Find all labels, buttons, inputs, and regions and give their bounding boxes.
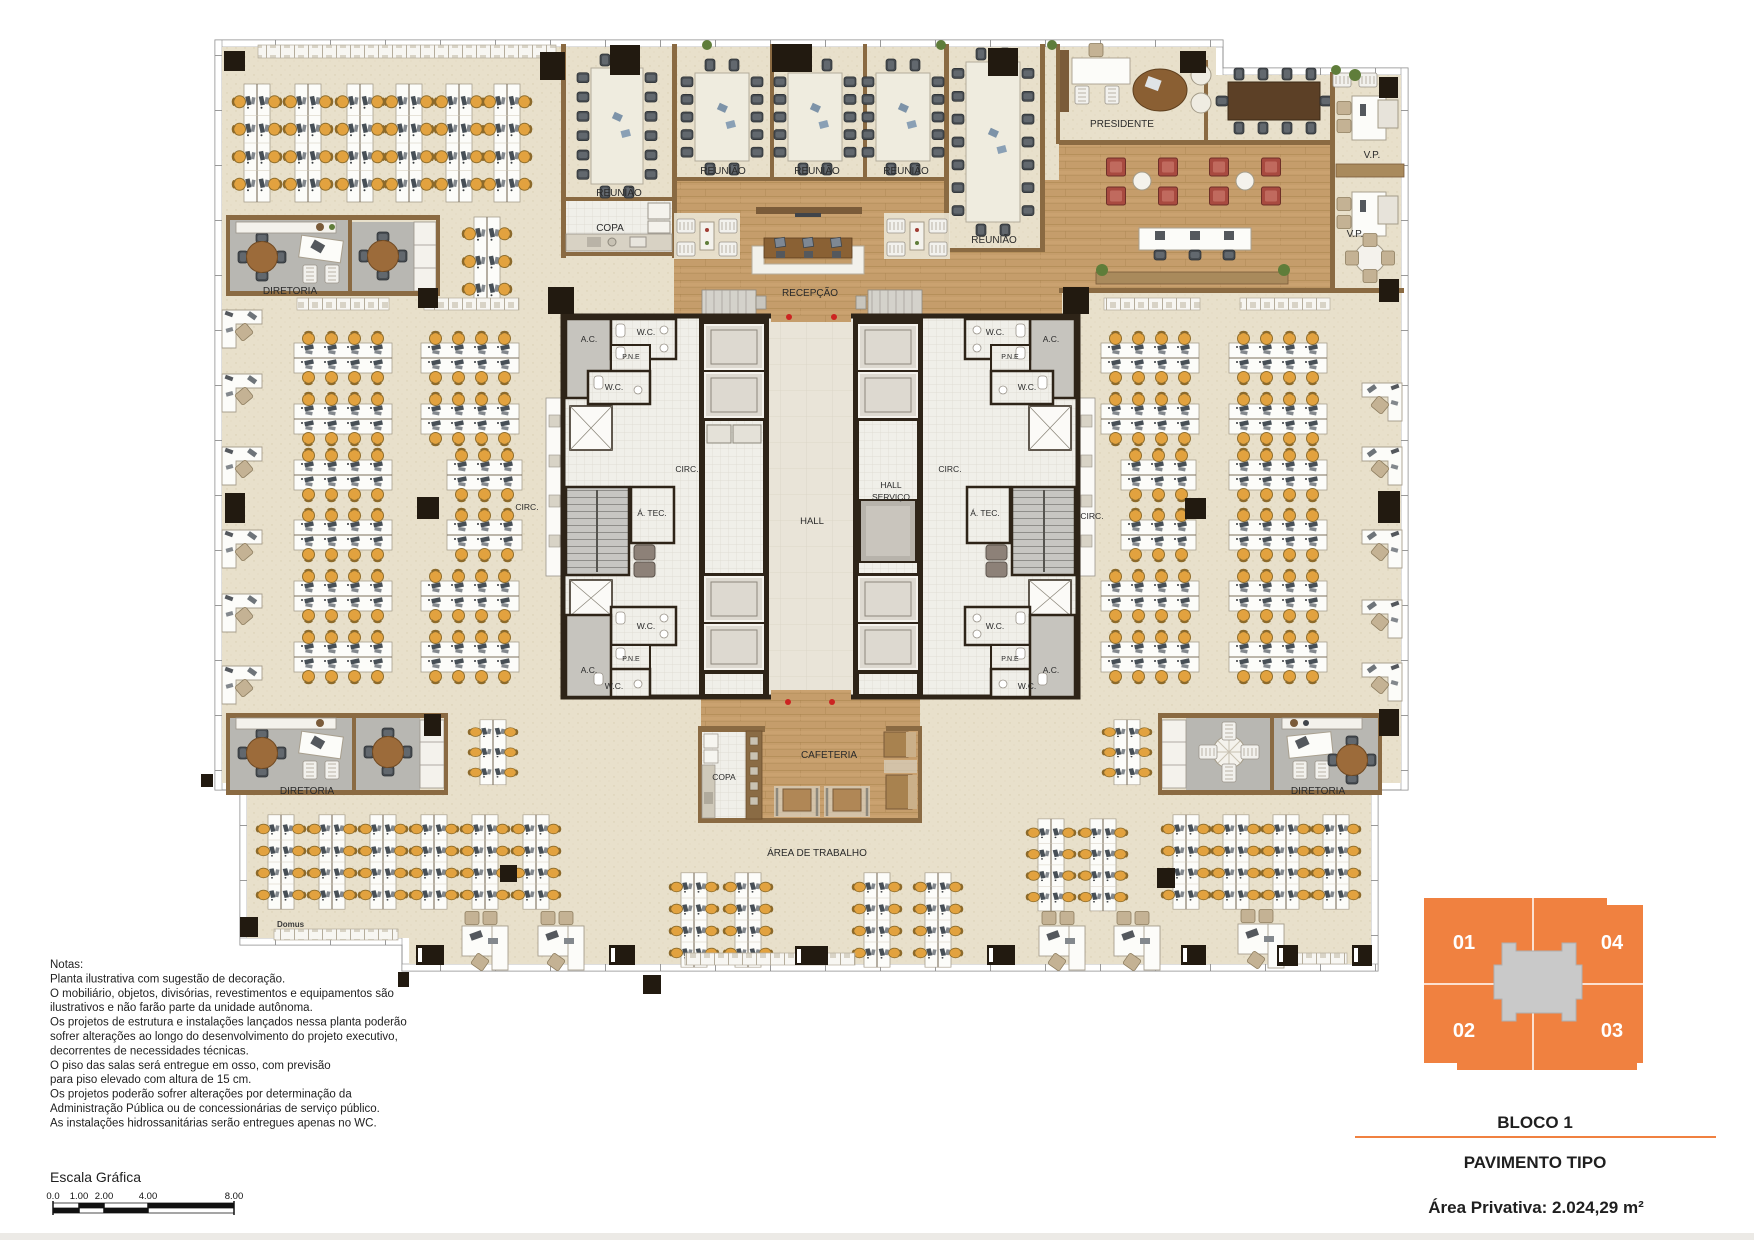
svg-text:Á. TEC.: Á. TEC. <box>637 508 667 518</box>
svg-text:HALL: HALL <box>880 480 902 490</box>
svg-text:HALL: HALL <box>800 516 824 527</box>
svg-text:COPA: COPA <box>712 772 736 782</box>
svg-text:0.0: 0.0 <box>46 1191 59 1202</box>
svg-text:W.C.: W.C. <box>637 327 655 337</box>
svg-text:SERVIÇO: SERVIÇO <box>872 492 910 502</box>
svg-text:P.N.E: P.N.E <box>1001 656 1019 663</box>
svg-text:A.C.: A.C. <box>1043 334 1060 344</box>
svg-text:DIRETORIA: DIRETORIA <box>280 786 335 797</box>
svg-text:ÁREA DE TRABALHO: ÁREA DE TRABALHO <box>767 846 867 859</box>
svg-text:Escala Gráfica: Escala Gráfica <box>50 1169 141 1185</box>
svg-text:V.P.: V.P. <box>1364 150 1381 161</box>
svg-text:BLOCO 1: BLOCO 1 <box>1497 1113 1573 1132</box>
svg-text:1.00: 1.00 <box>70 1191 89 1202</box>
svg-text:CIRC.: CIRC. <box>938 464 961 474</box>
svg-text:A.C.: A.C. <box>1043 665 1060 675</box>
svg-text:W.C.: W.C. <box>605 681 623 691</box>
svg-text:Planta ilustrativa com sugestã: Planta ilustrativa com sugestão de decor… <box>50 973 285 985</box>
svg-text:DIRETORIA: DIRETORIA <box>263 286 318 297</box>
svg-text:Notas:: Notas: <box>50 959 83 971</box>
svg-text:PRESIDENTE: PRESIDENTE <box>1090 119 1154 130</box>
svg-text:RECEPÇÃO: RECEPÇÃO <box>782 286 838 299</box>
svg-text:REUNIÃO: REUNIÃO <box>596 186 642 199</box>
svg-text:PAVIMENTO TIPO: PAVIMENTO TIPO <box>1464 1153 1607 1172</box>
svg-text:REUNIÃO: REUNIÃO <box>700 164 746 177</box>
svg-text:W.C.: W.C. <box>986 327 1004 337</box>
svg-text:Área Privativa: 2.024,29 m²: Área Privativa: 2.024,29 m² <box>1428 1198 1644 1217</box>
svg-text:O mobiliário, objetos, divisór: O mobiliário, objetos, divisórias, reves… <box>50 988 394 1000</box>
svg-text:W.C.: W.C. <box>605 382 623 392</box>
svg-text:CIRC.: CIRC. <box>1080 511 1103 521</box>
svg-text:CIRC.: CIRC. <box>675 464 698 474</box>
svg-text:Administração Pública ou de co: Administração Pública ou de concessionár… <box>50 1103 380 1115</box>
svg-text:2.00: 2.00 <box>95 1191 114 1202</box>
svg-text:ilustrativos e não farão parte: ilustrativos e não farão parte da unidad… <box>50 1002 313 1014</box>
svg-text:P.N.E: P.N.E <box>622 354 640 361</box>
svg-text:CIRC.: CIRC. <box>515 502 538 512</box>
svg-text:Á. TEC.: Á. TEC. <box>970 508 1000 518</box>
svg-text:COPA: COPA <box>596 223 624 234</box>
svg-text:04: 04 <box>1601 932 1624 954</box>
svg-text:REUNIÃO: REUNIÃO <box>883 164 929 177</box>
svg-text:A.C.: A.C. <box>581 665 598 675</box>
svg-text:Os projetos de estrutura e ins: Os projetos de estrutura e instalações l… <box>50 1017 407 1029</box>
svg-text:As instalações hidrossanitária: As instalações hidrossanitárias serão en… <box>50 1117 377 1129</box>
svg-text:decorrentes de necessidades té: decorrentes de necessidades técnicas. <box>50 1045 249 1057</box>
svg-text:Os projetos poderão sofrer alt: Os projetos poderão sofrer alterações po… <box>50 1089 352 1101</box>
svg-text:REUNIÃO: REUNIÃO <box>794 164 840 177</box>
svg-text:sofrer alterações ao longo do: sofrer alterações ao longo do desenvolvi… <box>50 1031 398 1043</box>
svg-text:para piso elevado com altura d: para piso elevado com altura de 15 cm. <box>50 1074 251 1086</box>
svg-text:REUNIÃO: REUNIÃO <box>971 233 1017 246</box>
svg-text:O piso das salas será entregue: O piso das salas será entregue em osso, … <box>50 1060 331 1072</box>
svg-text:P.N.E: P.N.E <box>1001 354 1019 361</box>
svg-text:01: 01 <box>1453 932 1475 954</box>
svg-text:W.C.: W.C. <box>637 621 655 631</box>
svg-text:8.00: 8.00 <box>225 1191 244 1202</box>
svg-text:W.C.: W.C. <box>986 621 1004 631</box>
svg-text:DIRETORIA: DIRETORIA <box>1291 786 1346 797</box>
svg-text:W.C.: W.C. <box>1018 681 1036 691</box>
svg-text:V.P.: V.P. <box>1347 229 1364 240</box>
svg-text:P.N.E: P.N.E <box>622 656 640 663</box>
svg-text:02: 02 <box>1453 1020 1475 1042</box>
svg-text:03: 03 <box>1601 1020 1623 1042</box>
svg-text:CAFETERIA: CAFETERIA <box>801 750 857 761</box>
svg-text:A.C.: A.C. <box>581 334 598 344</box>
svg-text:4.00: 4.00 <box>139 1191 158 1202</box>
svg-text:Domus: Domus <box>277 920 305 929</box>
svg-text:W.C.: W.C. <box>1018 382 1036 392</box>
